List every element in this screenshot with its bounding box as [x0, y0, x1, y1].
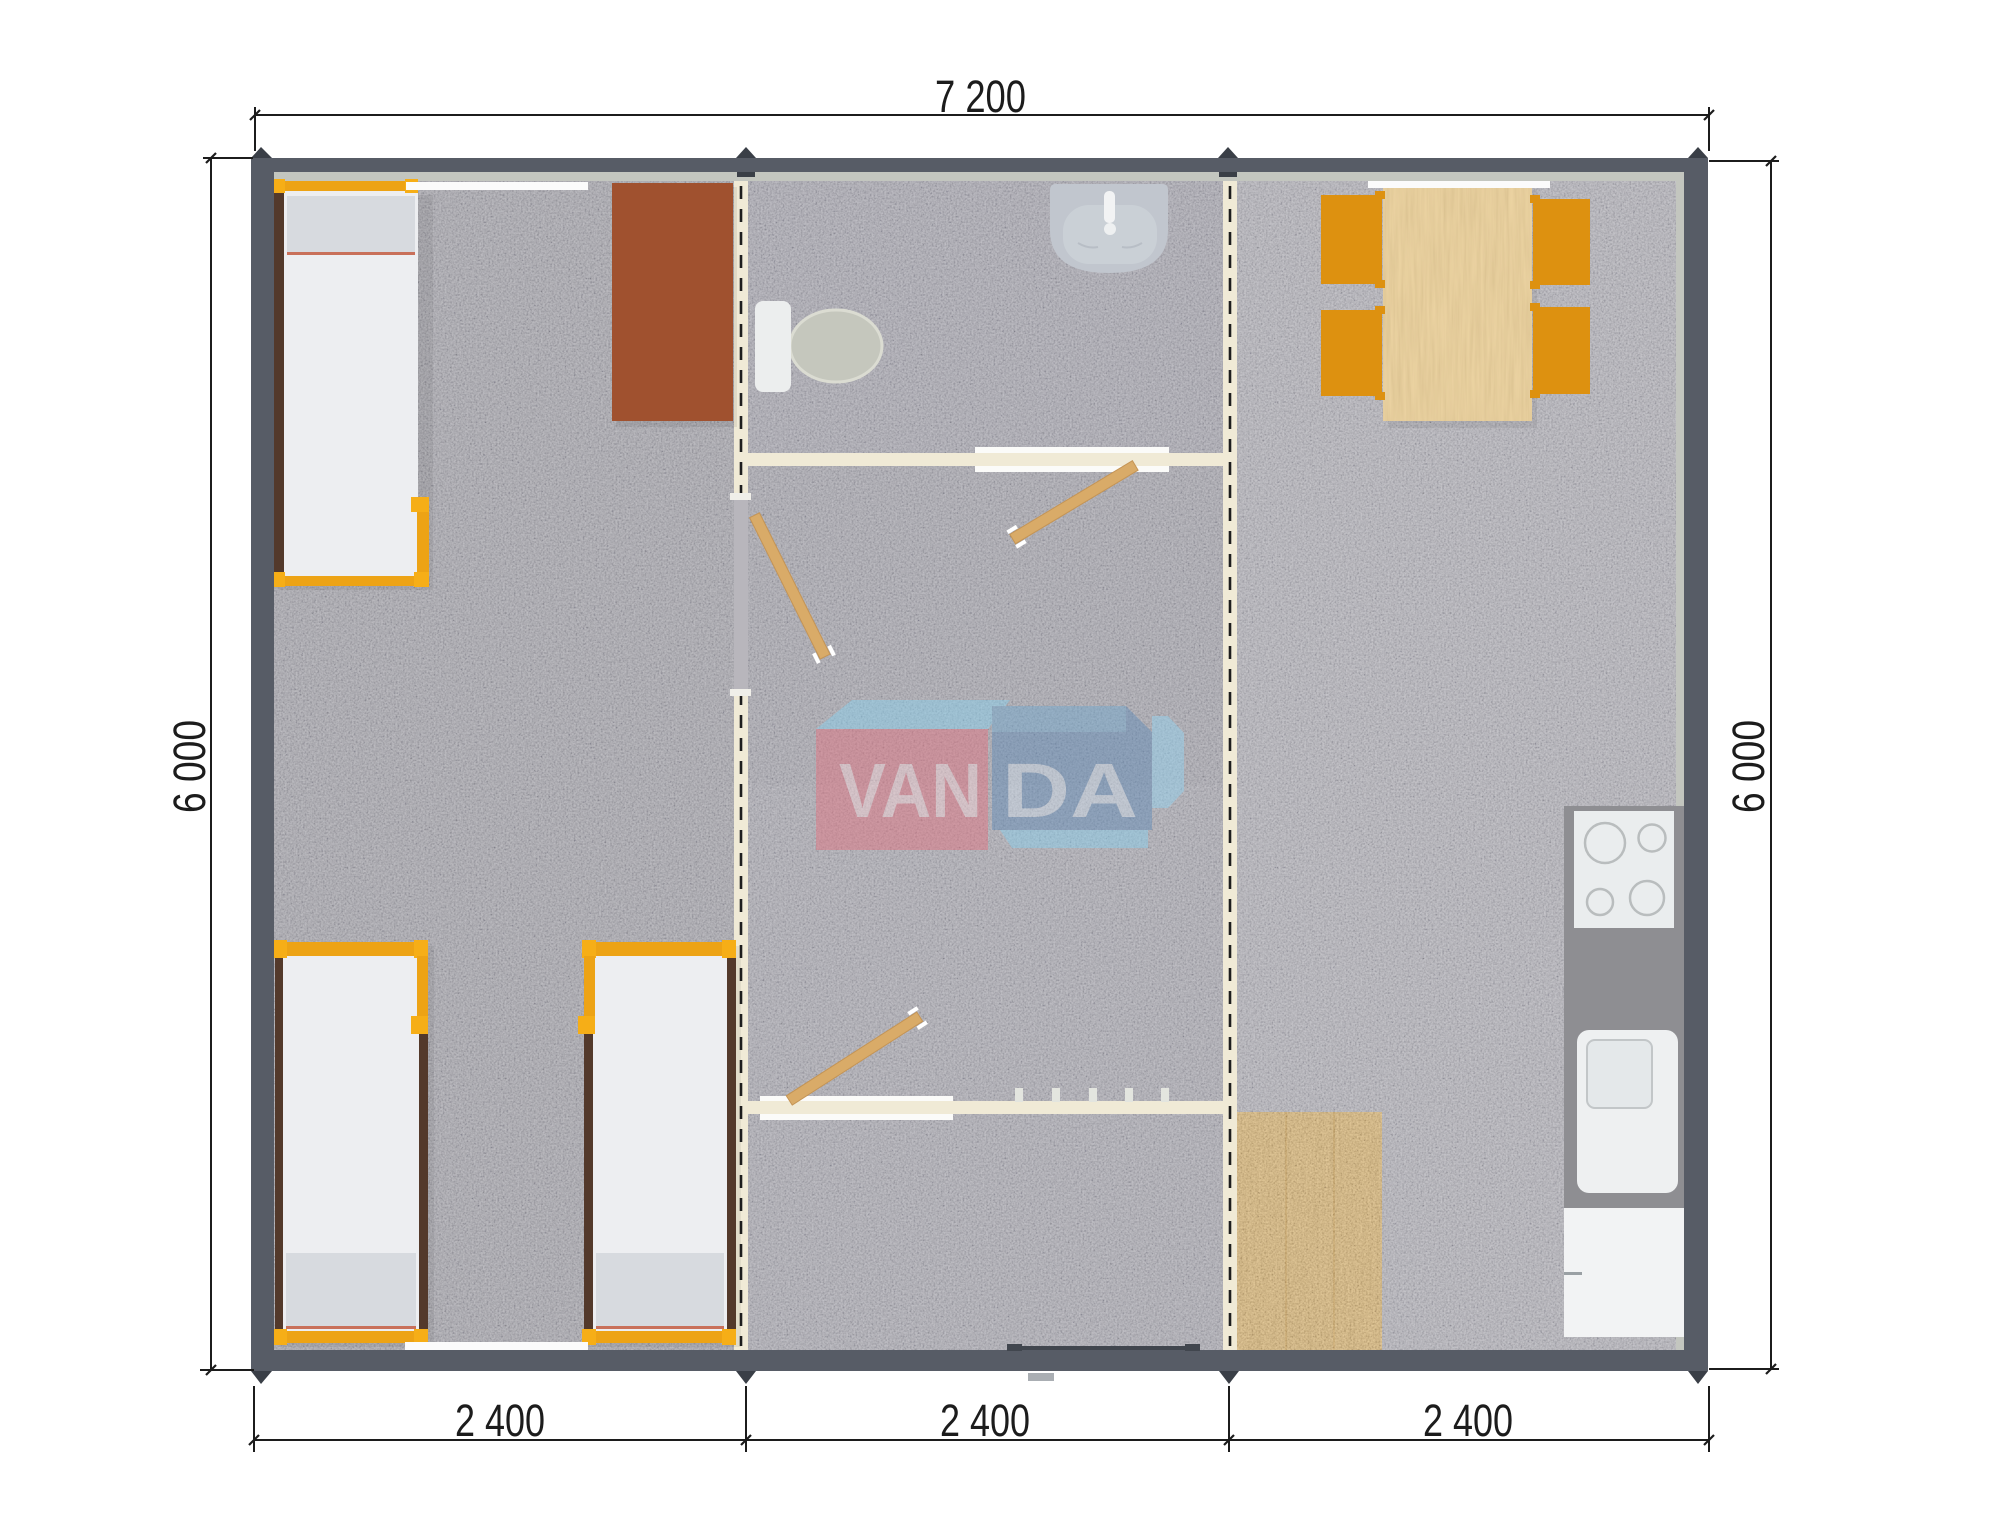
svg-text:DA: DA: [1002, 748, 1138, 834]
svg-text:6 000: 6 000: [164, 720, 215, 813]
svg-text:2 400: 2 400: [940, 1395, 1030, 1446]
svg-text:2 400: 2 400: [455, 1395, 545, 1446]
svg-text:7 200: 7 200: [935, 71, 1026, 122]
svg-text:6 000: 6 000: [1723, 720, 1774, 813]
svg-text:2 400: 2 400: [1423, 1395, 1513, 1446]
svg-text:VAN: VAN: [839, 748, 982, 834]
